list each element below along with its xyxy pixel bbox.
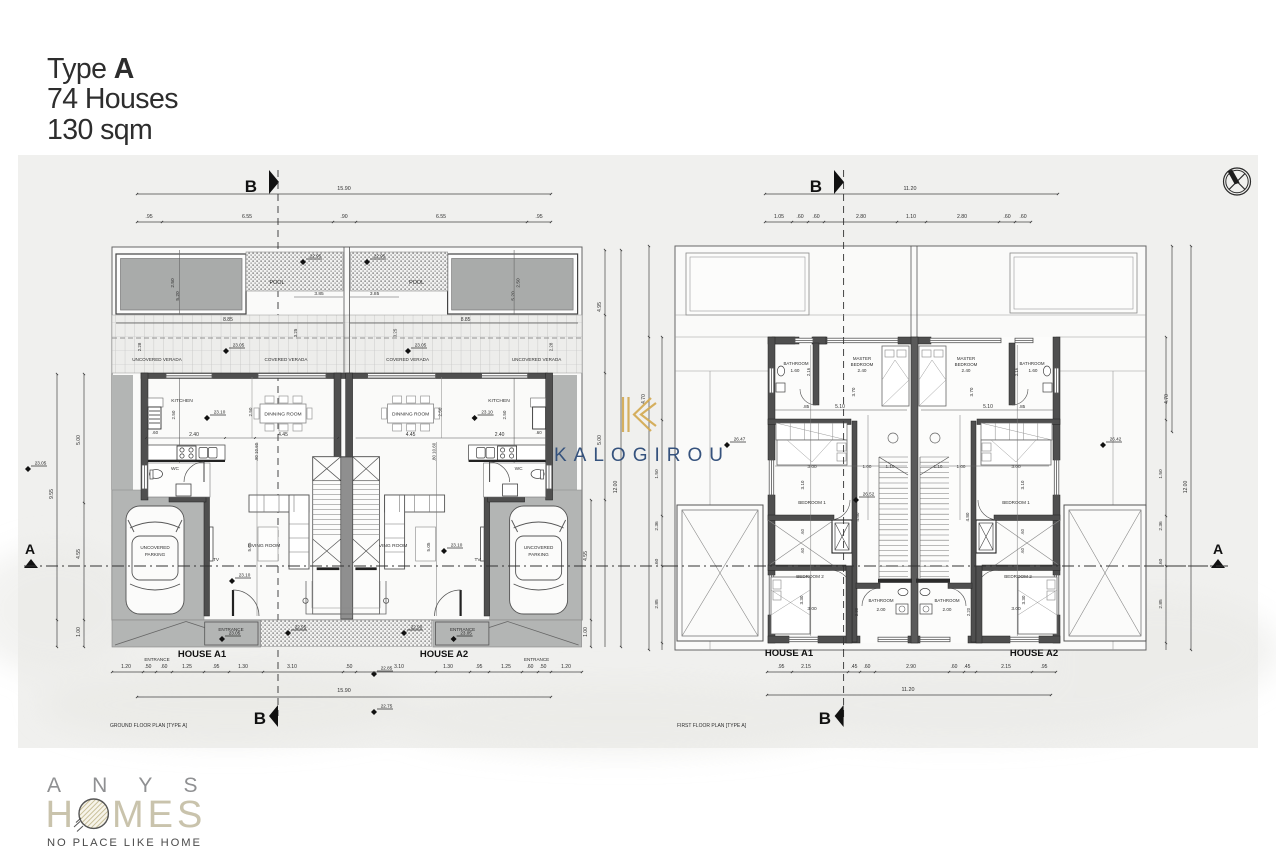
- svg-text:1.20: 1.20: [561, 664, 571, 670]
- svg-text:.95: .95: [476, 664, 483, 670]
- svg-text:2.16: 2.16: [806, 367, 811, 376]
- svg-text:.95: .95: [778, 664, 785, 670]
- svg-text:A: A: [25, 541, 35, 557]
- svg-text:2.85: 2.85: [1158, 599, 1164, 609]
- svg-text:2.20: 2.20: [854, 607, 859, 616]
- svg-text:4.80: 4.80: [965, 512, 970, 521]
- svg-text:FIRST FLOOR PLAN [TYPE A]: FIRST FLOOR PLAN [TYPE A]: [677, 723, 747, 729]
- svg-text:23.05: 23.05: [460, 631, 472, 636]
- svg-text:.95: .95: [213, 664, 220, 670]
- svg-text:1.60: 1.60: [791, 368, 800, 373]
- svg-text:15.90: 15.90: [337, 688, 351, 694]
- svg-text:2.80: 2.80: [957, 214, 967, 220]
- svg-text:HOUSE A1: HOUSE A1: [765, 648, 814, 659]
- svg-text:4.95: 4.95: [597, 302, 603, 312]
- svg-text:BEDROOM 1: BEDROOM 1: [798, 500, 826, 505]
- svg-text:UNCOVERED VERADA: UNCOVERED VERADA: [132, 357, 182, 362]
- svg-text:22.95: 22.95: [295, 625, 307, 630]
- svg-text:TV: TV: [213, 557, 220, 563]
- svg-text:3.85: 3.85: [314, 291, 324, 297]
- svg-text:PARKING: PARKING: [145, 552, 166, 557]
- svg-text:.60: .60: [161, 664, 168, 670]
- svg-text:23.05: 23.05: [35, 461, 47, 466]
- svg-text:WC: WC: [515, 466, 524, 472]
- svg-text:12.00: 12.00: [1183, 481, 1189, 494]
- svg-text:3.70: 3.70: [969, 387, 974, 396]
- svg-text:.60: .60: [800, 528, 805, 534]
- svg-text:1.20: 1.20: [121, 664, 131, 670]
- svg-text:130 sqm: 130 sqm: [47, 114, 152, 146]
- svg-text:.50: .50: [346, 664, 353, 670]
- svg-text:3.00: 3.00: [1011, 606, 1021, 612]
- svg-text:LIVING ROOM: LIVING ROOM: [248, 543, 281, 549]
- svg-text:KITCHEN: KITCHEN: [488, 398, 510, 404]
- svg-text:2.40: 2.40: [495, 432, 505, 438]
- svg-text:BEDROOM 2: BEDROOM 2: [796, 574, 824, 579]
- svg-text:H: H: [46, 794, 73, 836]
- svg-text:UNCOVERED: UNCOVERED: [524, 545, 554, 550]
- svg-text:.60: .60: [152, 430, 159, 435]
- svg-text:1.25: 1.25: [182, 664, 192, 670]
- svg-text:2.50: 2.50: [438, 407, 443, 416]
- svg-text:.60: .60: [527, 664, 534, 670]
- svg-text:.50: .50: [540, 664, 547, 670]
- svg-text:1.30: 1.30: [238, 664, 248, 670]
- svg-text:2.50: 2.50: [170, 278, 176, 288]
- svg-text:POOL: POOL: [270, 280, 285, 286]
- svg-text:ENTRANCE: ENTRANCE: [524, 657, 549, 662]
- svg-text:2.50: 2.50: [502, 410, 507, 419]
- svg-text:23.05: 23.05: [229, 631, 241, 636]
- svg-text:1.10: 1.10: [934, 464, 943, 469]
- svg-text:3.00: 3.00: [807, 606, 817, 612]
- svg-text:2.80: 2.80: [856, 214, 866, 220]
- svg-text:BEDROOM: BEDROOM: [955, 362, 978, 367]
- svg-text:.95: .95: [1041, 664, 1048, 670]
- svg-text:B: B: [810, 177, 822, 196]
- svg-text:2.36: 2.36: [1158, 521, 1164, 531]
- svg-text:DINNING ROOM: DINNING ROOM: [264, 412, 301, 418]
- svg-text:5.05: 5.05: [247, 542, 252, 551]
- svg-text:.60: .60: [1020, 547, 1025, 553]
- svg-text:4.55: 4.55: [76, 549, 82, 559]
- svg-text:4.45: 4.45: [406, 432, 416, 438]
- svg-text:3.25: 3.25: [393, 328, 398, 337]
- svg-text:A: A: [1213, 541, 1223, 557]
- svg-text:23.10: 23.10: [451, 543, 463, 548]
- svg-text:BEDROOM 2: BEDROOM 2: [1004, 574, 1032, 579]
- svg-text:.45: .45: [964, 664, 971, 670]
- svg-text:.60: .60: [1020, 528, 1025, 534]
- svg-text:4.70: 4.70: [1164, 394, 1170, 404]
- svg-text:2.00: 2.00: [943, 607, 952, 612]
- svg-text:.95: .95: [535, 214, 542, 220]
- svg-text:12.00: 12.00: [613, 481, 619, 494]
- svg-text:DINNING ROOM: DINNING ROOM: [392, 412, 429, 418]
- svg-text:1.25: 1.25: [501, 664, 511, 670]
- svg-text:3.10: 3.10: [1020, 480, 1025, 489]
- svg-text:11.20: 11.20: [901, 687, 914, 693]
- svg-text:3.10: 3.10: [800, 480, 805, 489]
- svg-text:4.45: 4.45: [278, 432, 288, 438]
- svg-text:.80 10.60: .80 10.60: [254, 442, 259, 461]
- svg-text:3.10: 3.10: [394, 664, 404, 670]
- svg-text:BATHROOM: BATHROOM: [934, 598, 959, 603]
- svg-text:1.05: 1.05: [774, 214, 784, 220]
- svg-text:.85: .85: [803, 404, 810, 409]
- svg-text:.50: .50: [145, 664, 152, 670]
- svg-text:23.05: 23.05: [415, 343, 427, 348]
- svg-text:B: B: [254, 709, 266, 728]
- svg-text:2.85: 2.85: [654, 599, 660, 609]
- svg-text:5.20: 5.20: [511, 291, 517, 301]
- svg-text:74 Houses: 74 Houses: [47, 83, 178, 115]
- svg-text:1.10: 1.10: [906, 214, 916, 220]
- svg-text:3.25: 3.25: [293, 328, 298, 337]
- svg-text:TV: TV: [474, 557, 481, 563]
- svg-text:5.00: 5.00: [76, 435, 82, 445]
- svg-text:COVERED VERADA: COVERED VERADA: [386, 357, 430, 362]
- svg-text:HOUSE A1: HOUSE A1: [178, 649, 227, 660]
- svg-text:4.55: 4.55: [583, 551, 589, 561]
- svg-text:1.00: 1.00: [583, 627, 589, 637]
- svg-text:2.36: 2.36: [654, 521, 660, 531]
- svg-text:BATHROOM: BATHROOM: [783, 361, 808, 366]
- svg-text:1.60: 1.60: [1029, 368, 1038, 373]
- svg-text:3.85: 3.85: [370, 291, 380, 297]
- svg-text:2.40: 2.40: [858, 368, 867, 373]
- svg-text:23.10: 23.10: [481, 410, 493, 415]
- svg-text:22.95: 22.95: [310, 254, 322, 259]
- svg-text:1.30: 1.30: [443, 664, 453, 670]
- svg-text:HOUSE A2: HOUSE A2: [1010, 648, 1058, 659]
- svg-text:26.47: 26.47: [734, 437, 746, 442]
- svg-text:2.16: 2.16: [1014, 367, 1019, 376]
- svg-text:5.10: 5.10: [983, 404, 993, 410]
- svg-text:2.40: 2.40: [189, 432, 199, 438]
- svg-text:22.95: 22.95: [374, 254, 386, 259]
- svg-text:2.50: 2.50: [171, 410, 176, 419]
- svg-text:.60: .60: [536, 430, 543, 435]
- svg-text:8.85: 8.85: [461, 317, 471, 323]
- svg-text:BEDROOM: BEDROOM: [851, 362, 874, 367]
- svg-text:1.10: 1.10: [886, 464, 895, 469]
- svg-text:.60: .60: [1003, 214, 1010, 220]
- svg-text:5.00: 5.00: [597, 435, 603, 445]
- svg-text:8.85: 8.85: [223, 317, 233, 323]
- svg-text:2.50: 2.50: [248, 407, 253, 416]
- svg-text:3.30: 3.30: [799, 595, 804, 604]
- svg-text:26.42: 26.42: [1110, 437, 1122, 442]
- svg-text:.60: .60: [864, 664, 871, 670]
- svg-text:Type A: Type A: [47, 53, 134, 85]
- svg-text:9.55: 9.55: [49, 489, 55, 499]
- svg-text:.80 10.60: .80 10.60: [432, 442, 437, 461]
- svg-text:.60: .60: [812, 214, 819, 220]
- svg-text:KITCHEN: KITCHEN: [171, 398, 193, 404]
- svg-text:.60: .60: [654, 558, 660, 565]
- svg-text:BEDROOM 1: BEDROOM 1: [1002, 500, 1030, 505]
- svg-text:1.00: 1.00: [76, 627, 82, 637]
- svg-text:.45: .45: [851, 664, 858, 670]
- svg-text:GROUND FLOOR PLAN [TYPE A]: GROUND FLOOR PLAN [TYPE A]: [110, 723, 188, 729]
- svg-text:1.00: 1.00: [957, 464, 966, 469]
- svg-text:23.10: 23.10: [214, 410, 226, 415]
- svg-text:POOL: POOL: [409, 280, 424, 286]
- svg-text:3.10: 3.10: [287, 664, 297, 670]
- svg-text:2.90: 2.90: [906, 664, 916, 670]
- svg-text:.60: .60: [951, 664, 958, 670]
- svg-text:1.50: 1.50: [654, 469, 660, 479]
- svg-text:22.75: 22.75: [381, 704, 393, 709]
- svg-text:MASTER: MASTER: [957, 356, 975, 361]
- svg-text:UNCOVERED VERADA: UNCOVERED VERADA: [512, 357, 562, 362]
- svg-text:6.55: 6.55: [242, 214, 252, 220]
- svg-text:.60: .60: [1019, 214, 1026, 220]
- svg-text:UNCOVERED: UNCOVERED: [140, 545, 170, 550]
- svg-text:2.15: 2.15: [801, 664, 811, 670]
- svg-text:ENTRANCE: ENTRANCE: [144, 657, 169, 662]
- svg-text:5.05: 5.05: [426, 542, 431, 551]
- svg-text:26.52: 26.52: [863, 492, 875, 497]
- svg-text:22.90: 22.90: [411, 625, 423, 630]
- svg-text:COVERED VERADA: COVERED VERADA: [265, 357, 309, 362]
- svg-text:WC: WC: [171, 466, 180, 472]
- svg-text:BATHROOM: BATHROOM: [1019, 361, 1044, 366]
- svg-text:KALOGIROU: KALOGIROU: [554, 445, 730, 466]
- svg-text:BATHROOM: BATHROOM: [868, 598, 893, 603]
- svg-text:MES: MES: [112, 794, 206, 836]
- svg-text:.90: .90: [340, 214, 347, 220]
- svg-text:5.20: 5.20: [175, 291, 181, 301]
- svg-text:3.30: 3.30: [1021, 595, 1026, 604]
- svg-text:.95: .95: [145, 214, 152, 220]
- svg-text:22.85: 22.85: [381, 666, 393, 671]
- svg-text:.85: .85: [1019, 404, 1026, 409]
- svg-text:6.55: 6.55: [436, 214, 446, 220]
- svg-text:2.50: 2.50: [516, 278, 522, 288]
- svg-text:1.00: 1.00: [863, 464, 872, 469]
- svg-text:B: B: [245, 177, 257, 196]
- svg-text:.60: .60: [800, 547, 805, 553]
- svg-text:1.50: 1.50: [1158, 469, 1164, 479]
- svg-text:MASTER: MASTER: [853, 356, 871, 361]
- svg-text:.60: .60: [1158, 558, 1164, 565]
- svg-text:3.00: 3.00: [1011, 464, 1021, 470]
- svg-text:23.05: 23.05: [233, 343, 245, 348]
- svg-text:2.15: 2.15: [1001, 664, 1011, 670]
- svg-text:2.28: 2.28: [137, 342, 142, 351]
- svg-text:.60: .60: [796, 214, 803, 220]
- svg-text:2.28: 2.28: [549, 342, 554, 351]
- svg-text:2.00: 2.00: [877, 607, 886, 612]
- svg-text:3.00: 3.00: [807, 464, 817, 470]
- svg-text:11.20: 11.20: [903, 186, 916, 192]
- svg-text:NO PLACE LIKE HOME: NO PLACE LIKE HOME: [47, 837, 202, 849]
- svg-text:23.10: 23.10: [239, 573, 251, 578]
- svg-text:3.70: 3.70: [851, 387, 856, 396]
- svg-text:2.20: 2.20: [966, 607, 971, 616]
- svg-text:B: B: [819, 709, 831, 728]
- svg-text:HOUSE A2: HOUSE A2: [420, 649, 468, 660]
- svg-text:2.40: 2.40: [962, 368, 971, 373]
- svg-text:PARKING: PARKING: [528, 552, 549, 557]
- svg-text:15.90: 15.90: [337, 186, 351, 192]
